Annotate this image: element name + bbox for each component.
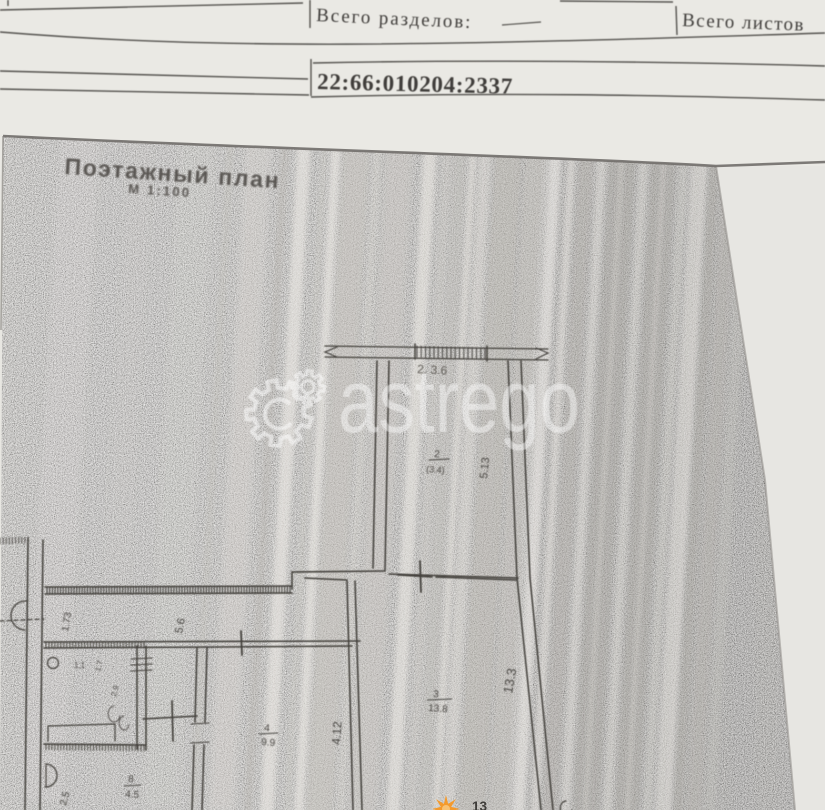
svg-text:4.12: 4.12 [329,721,345,746]
svg-text:9.9: 9.9 [261,737,276,749]
svg-text:(3.4): (3.4) [426,464,445,475]
svg-text:1.1: 1.1 [74,661,86,670]
svg-text:5.13: 5.13 [478,457,492,480]
svg-text:13: 13 [472,799,488,810]
svg-text:astrego: astrego [338,352,580,452]
svg-text:4.5: 4.5 [125,789,140,801]
svg-text:13.8: 13.8 [428,703,449,715]
svg-text:22:66:010204:2337: 22:66:010204:2337 [317,69,513,99]
